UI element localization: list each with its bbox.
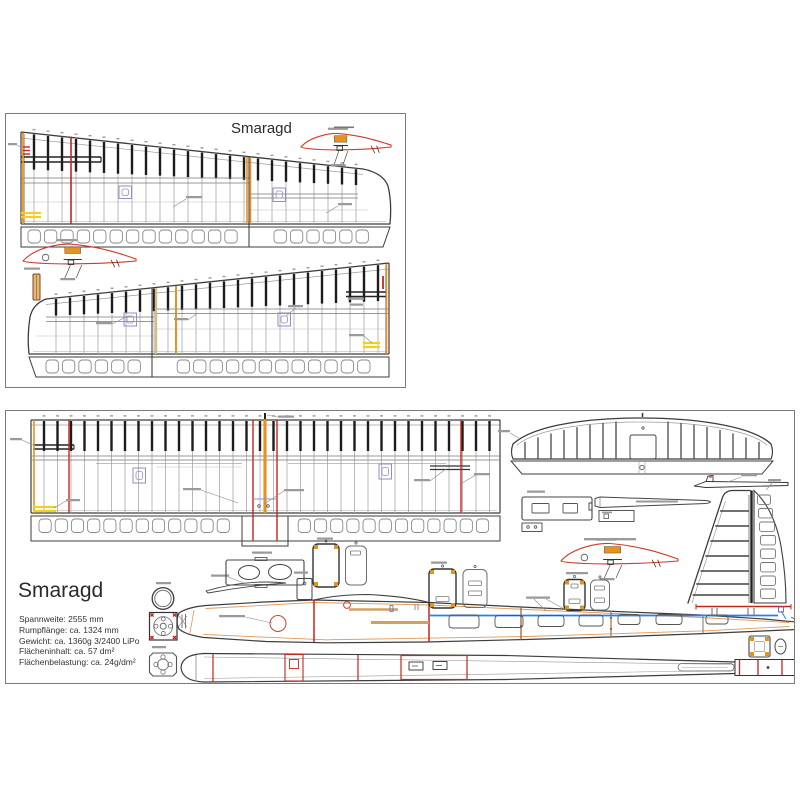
spec-block: Spannweite: 2555 mm Rumpflänge: ca. 1324… bbox=[19, 614, 140, 668]
fuselage-top-view bbox=[181, 654, 794, 683]
top-sheet-title: Smaragd bbox=[231, 120, 292, 137]
spec-wing-area: Flächeninhalt: ca. 57 dm² bbox=[19, 646, 140, 657]
wing-center-section bbox=[10, 413, 500, 546]
spec-weight: Gewicht: ca. 1360g 3/2400 LiPo bbox=[19, 636, 140, 647]
canopy-frames bbox=[313, 538, 610, 611]
small-box-part bbox=[599, 511, 634, 522]
blueprint-page: { "top_sheet": { "title": "Smaragd" }, "… bbox=[0, 0, 800, 800]
tail-fittings bbox=[749, 636, 786, 657]
spar-stick-part bbox=[24, 268, 40, 301]
tail-boom-part bbox=[595, 497, 711, 508]
parts-plate bbox=[522, 491, 592, 521]
wing-panel-left bbox=[28, 260, 389, 377]
spec-wing-loading: Flächenbelastung: ca. 24g/dm² bbox=[19, 657, 140, 668]
small-plate bbox=[522, 523, 542, 532]
spec-fuselage-length: Rumpflänge: ca. 1324 mm bbox=[19, 625, 140, 636]
bottom-sheet-title: Smaragd bbox=[18, 579, 103, 603]
servo-box-part bbox=[294, 572, 312, 600]
stabilizer-plan bbox=[498, 413, 773, 474]
spec-wingspan: Spannweite: 2555 mm bbox=[19, 614, 140, 625]
wing-panel-right bbox=[8, 129, 391, 247]
bottom-plan-sheet: Smaragd Spannweite: 2555 mm Rumpflänge: … bbox=[5, 410, 795, 684]
nose-formers bbox=[150, 582, 178, 676]
top-plan-sheet: Smaragd bbox=[5, 113, 406, 388]
top-sheet-drawing bbox=[6, 114, 405, 387]
